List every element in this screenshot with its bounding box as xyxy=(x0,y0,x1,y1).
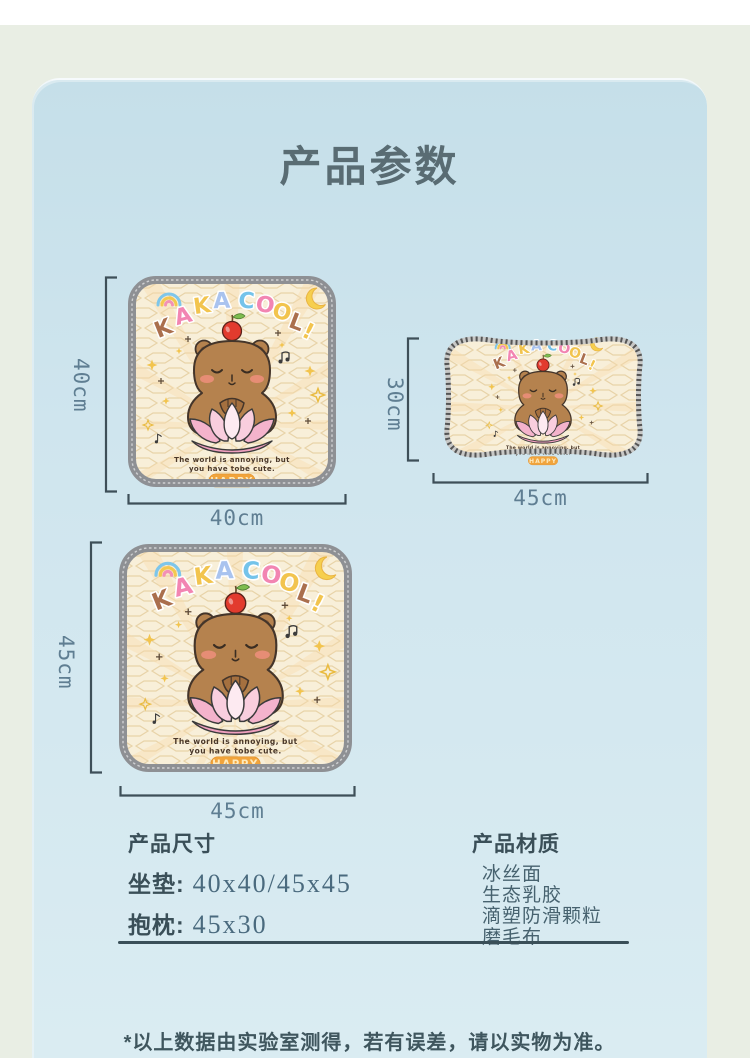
dimension-line-pillow-height xyxy=(406,337,420,462)
dimension-line-cushion-large-width xyxy=(119,786,356,797)
dimension-label-pillow-width: 45cm xyxy=(432,486,649,510)
spec-label-pillow: 抱枕: xyxy=(128,906,185,940)
spec-row-pillow: 抱枕: 45x30 xyxy=(128,906,352,940)
dimension-label-pillow-height: 30cm xyxy=(382,356,408,452)
material-item: 滴塑防滑颗粒 xyxy=(482,906,602,927)
spec-row-cushion: 坐垫: 40x40/45x45 xyxy=(128,865,352,899)
product-size-section: 产品尺寸 坐垫: 40x40/45x45 抱枕: 45x30 xyxy=(128,828,352,940)
dimension-label-cushion-large-height: 45cm xyxy=(53,612,79,712)
material-list: 冰丝面 生态乳胶 滴塑防滑颗粒 磨毛布 xyxy=(472,864,602,948)
product-size-heading: 产品尺寸 xyxy=(128,828,352,858)
spec-label-cushion: 坐垫: xyxy=(128,865,185,899)
product-material-section: 产品材质 冰丝面 生态乳胶 滴塑防滑颗粒 磨毛布 xyxy=(472,828,602,948)
material-item: 磨毛布 xyxy=(482,927,602,948)
material-item: 生态乳胶 xyxy=(482,885,602,906)
dimension-label-cushion-large-width: 45cm xyxy=(119,799,356,823)
page-title: 产品参数 xyxy=(32,133,707,194)
dimension-label-cushion-small-width: 40cm xyxy=(127,506,347,530)
dimension-line-cushion-small-width xyxy=(127,494,347,505)
dimension-label-cushion-small-height: 40cm xyxy=(68,337,94,433)
disclaimer-text: *以上数据由实验室测得，若有误差，请以实物为准。 xyxy=(32,1026,707,1055)
spec-value-cushion: 40x40/45x45 xyxy=(193,869,352,899)
page-background: 产品参数 xyxy=(0,0,750,1058)
material-item: 冰丝面 xyxy=(482,864,602,885)
cushion-40x40-image xyxy=(127,275,337,488)
spec-value-pillow: 45x30 xyxy=(193,910,268,940)
product-material-heading: 产品材质 xyxy=(472,828,602,858)
dimension-line-cushion-small-height xyxy=(104,276,118,493)
dimension-line-pillow-width xyxy=(432,473,649,484)
section-divider xyxy=(118,941,629,944)
pillow-45x30-image xyxy=(427,327,660,467)
cushion-45x45-image xyxy=(118,543,353,773)
top-white-strip xyxy=(0,0,750,25)
dimension-line-cushion-large-height xyxy=(89,541,103,774)
